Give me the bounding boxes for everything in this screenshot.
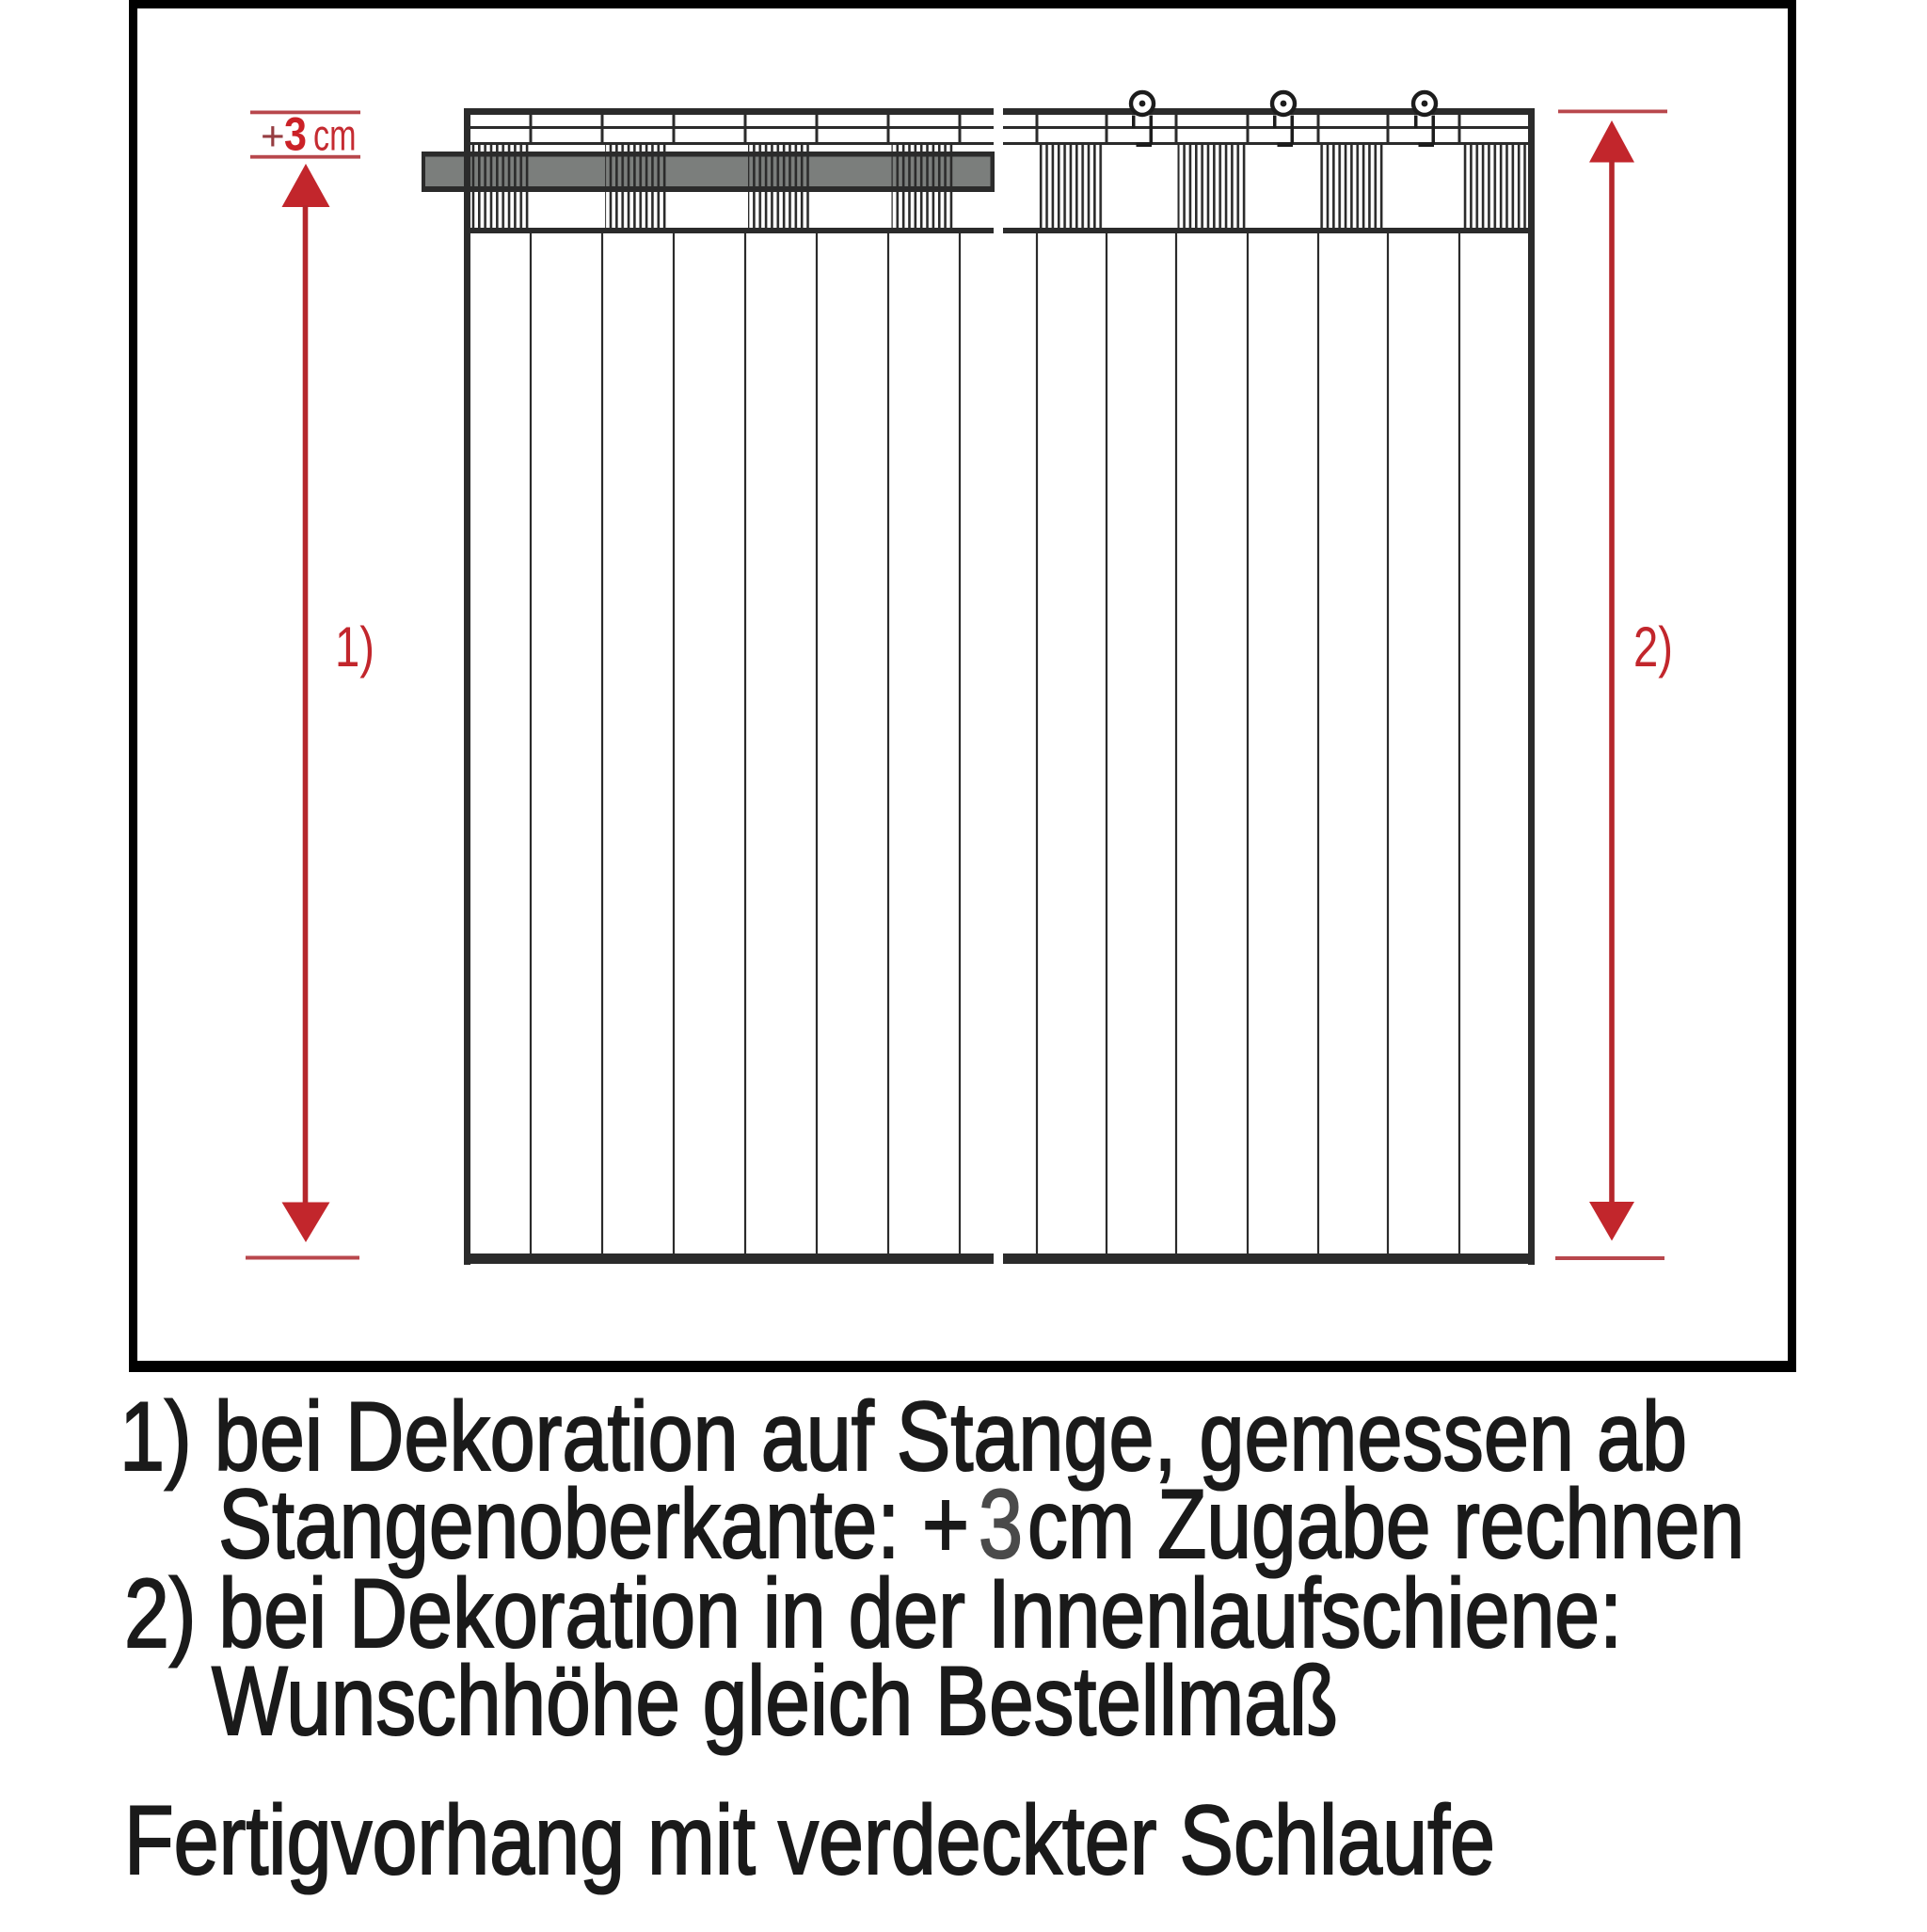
svg-text:1): 1) — [335, 615, 374, 679]
svg-text:3: 3 — [284, 108, 307, 161]
svg-text:+: + — [261, 114, 285, 160]
svg-text:cm: cm — [313, 111, 357, 160]
svg-text:Wunschhöhe gleich Bestellmaß: Wunschhöhe gleich Bestellmaß — [212, 1647, 1338, 1756]
svg-text:Fertigvorhang mit verdeckter S: Fertigvorhang mit verdeckter Schlaufe — [124, 1786, 1495, 1895]
svg-text:2): 2) — [1633, 615, 1673, 679]
